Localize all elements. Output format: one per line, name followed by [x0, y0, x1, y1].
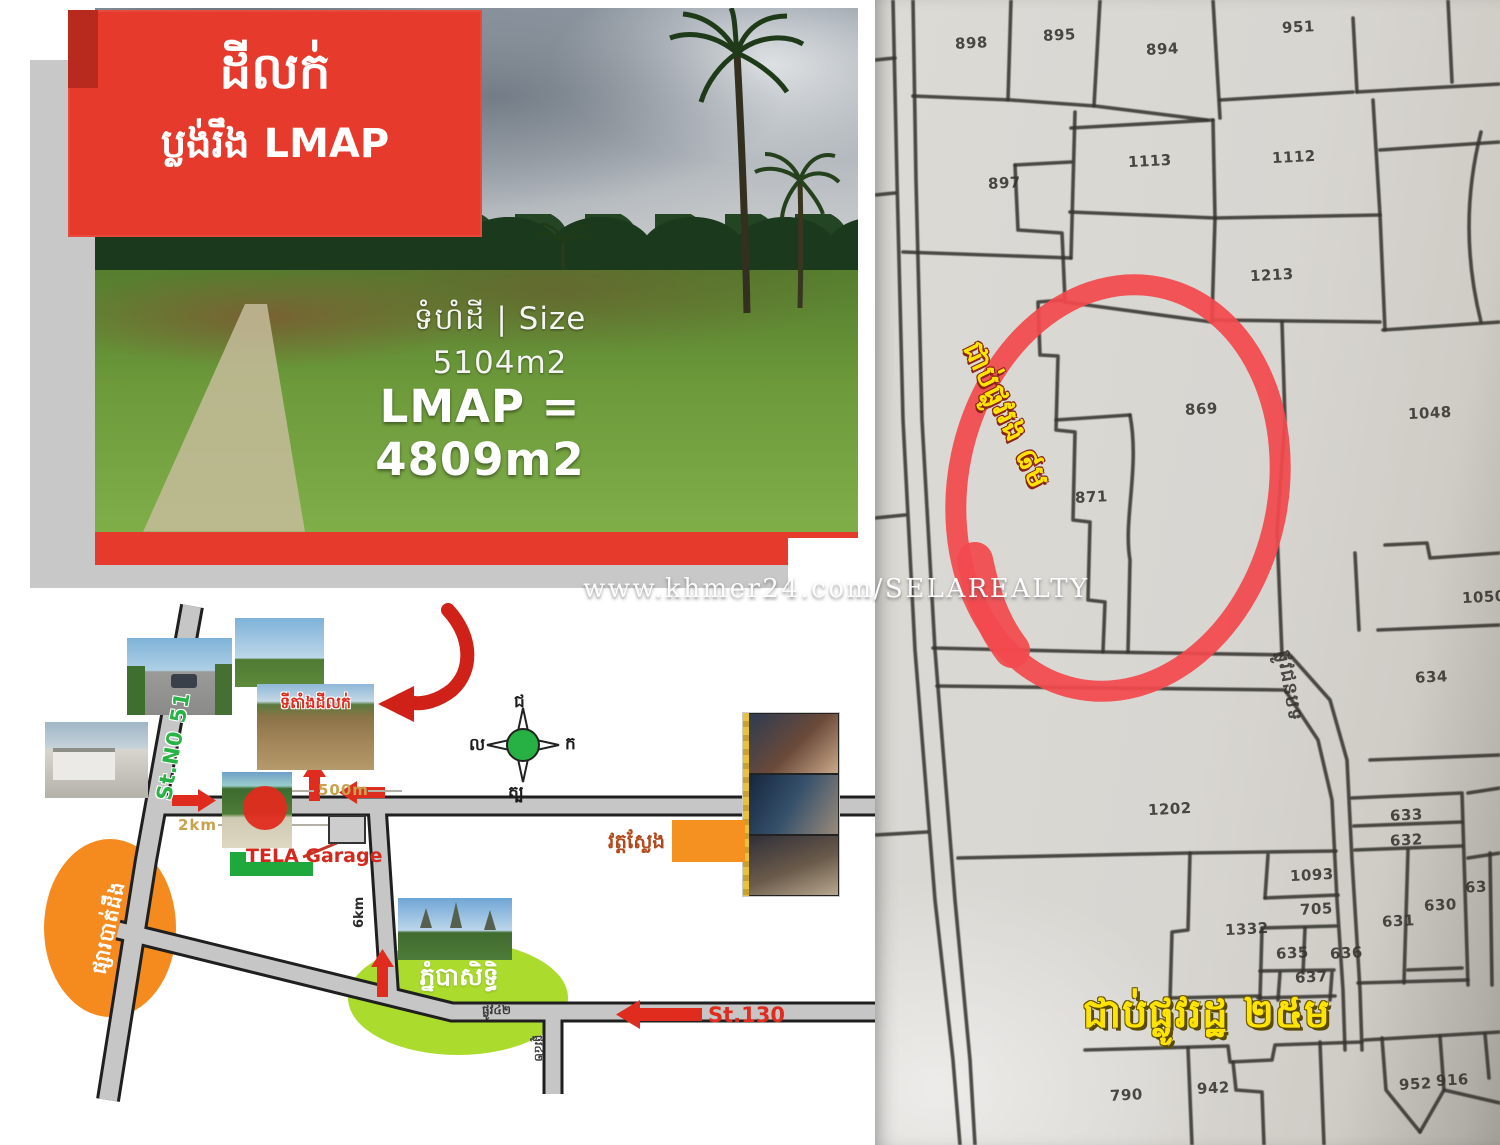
location-sketch-map: ផ្សារបាត់ដឹង [0, 600, 875, 1145]
parcel-number: 636 [1330, 943, 1364, 963]
parcel-number: 1332 [1225, 919, 1270, 939]
parcel-number: 1112 [1272, 147, 1317, 167]
compass-north-label: ជ [514, 691, 525, 716]
parcel-number: 1050 [1462, 587, 1500, 607]
parcel-number: 916 [1436, 1070, 1470, 1090]
parcel-number: 790 [1110, 1085, 1144, 1105]
compass-south-label: ត្ប [508, 782, 524, 807]
parcel-number: 1202 [1148, 799, 1193, 819]
street-42-label: ផ្លូវ៤២ [482, 1002, 511, 1020]
parcel-number: 1093 [1290, 865, 1335, 885]
parcel-number: 894 [1146, 39, 1180, 59]
banner-title: ដីលក់ [68, 38, 482, 104]
parcel-number: 869 [1185, 399, 1219, 419]
parcel-number: 1213 [1250, 265, 1295, 285]
street-42-vertical-label: ផ្លូវ៤២ [529, 1035, 545, 1062]
card-red-strip [95, 532, 858, 565]
big-curved-arrow-icon [378, 610, 467, 722]
wat-sleng-marker [672, 820, 745, 862]
wat-sleng-label: វត្តស្លែង [608, 828, 665, 858]
parcel-number: 895 [1043, 25, 1077, 45]
tela-garage-building [328, 815, 366, 844]
people-photo-collage [742, 712, 840, 897]
parcel-number: 634 [1415, 667, 1449, 687]
compass-east-label: ក [565, 733, 576, 758]
banner-subtitle: ប្លង់រឹង LMAP [68, 118, 482, 170]
parcel-number: 705 [1300, 899, 1334, 919]
phnom-baset-label: ភ្នំបាសិទ្ធិ [396, 962, 522, 998]
parcel-number: 871 [1075, 487, 1109, 507]
parcel-number: 635 [1276, 943, 1310, 963]
palm-field-photo [235, 618, 324, 687]
distance-500m-label: 500m [318, 781, 369, 799]
distance-6km-label: 6km [352, 897, 367, 928]
lmap-text: LMAP = 4809m2 [300, 380, 660, 486]
parcel-numbers: 8988958949518971113111212138698711048105… [875, 0, 1500, 1145]
cadastral-map: ជាប់ផ្លូវរង ៨ម ជាប់ផ្លូវរដ្ឋ ២៥ម ផ្លូវជន… [875, 0, 1500, 1145]
junction-dot-icon [243, 786, 287, 830]
parcel-number: 63 [1465, 877, 1488, 896]
site-location-label: ទីតាំងដីលក់ [257, 692, 374, 716]
parcel-number: 1048 [1408, 403, 1453, 423]
watermark: www.khmer24.com/SELAREALTY [583, 574, 1090, 604]
parcel-number: 951 [1282, 17, 1316, 37]
parcel-number: 633 [1390, 805, 1424, 825]
street-130-label: St.130 [708, 1003, 785, 1027]
compass-west-label: ល [469, 734, 485, 759]
parcel-number: 897 [988, 173, 1022, 193]
parcel-number: 952 [1399, 1074, 1433, 1094]
parcel-number: 1113 [1128, 151, 1173, 171]
parcel-number: 632 [1390, 830, 1424, 850]
tela-green-bar-icon [230, 852, 315, 878]
parcel-number: 631 [1382, 911, 1416, 931]
parcel-number: 942 [1197, 1078, 1231, 1098]
pagoda-photo [398, 898, 512, 960]
land-sale-ad: ទំហំដី | Size 5104m2 LMAP = 4809m2 ដីលក់… [0, 0, 1500, 1145]
banner-fold [68, 10, 98, 88]
car-icon [171, 674, 197, 688]
site-photo: ទីតាំងដីលក់ [257, 684, 374, 770]
size-text: ទំហំដី | Size 5104m2 [345, 300, 655, 381]
distance-2km-label: 2km [178, 816, 217, 834]
parcel-number: 637 [1295, 967, 1329, 987]
flowers-strip [743, 713, 749, 896]
sale-banner: ដីលក់ ប្លង់រឹង LMAP [68, 10, 482, 237]
parcel-number: 898 [955, 33, 989, 53]
building-photo [45, 722, 148, 798]
parcel-number: 630 [1424, 895, 1458, 915]
